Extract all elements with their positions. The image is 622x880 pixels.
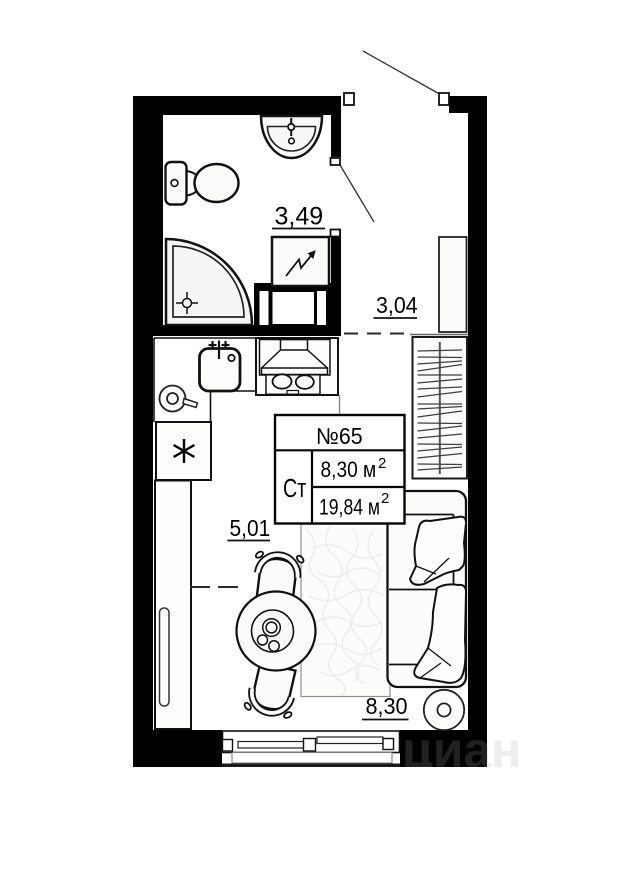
svg-text:19,84 м: 19,84 м xyxy=(319,496,380,520)
svg-text:8,30: 8,30 xyxy=(366,693,408,719)
svg-text:3,49: 3,49 xyxy=(275,203,324,231)
svg-text:5,01: 5,01 xyxy=(230,515,271,541)
svg-text:2: 2 xyxy=(378,455,386,472)
svg-text:2: 2 xyxy=(381,490,389,507)
svg-text:8,30 м: 8,30 м xyxy=(321,458,377,483)
svg-text:Ст: Ст xyxy=(283,473,307,502)
svg-text:3,04: 3,04 xyxy=(376,292,418,318)
svg-text:№65: №65 xyxy=(316,423,363,449)
